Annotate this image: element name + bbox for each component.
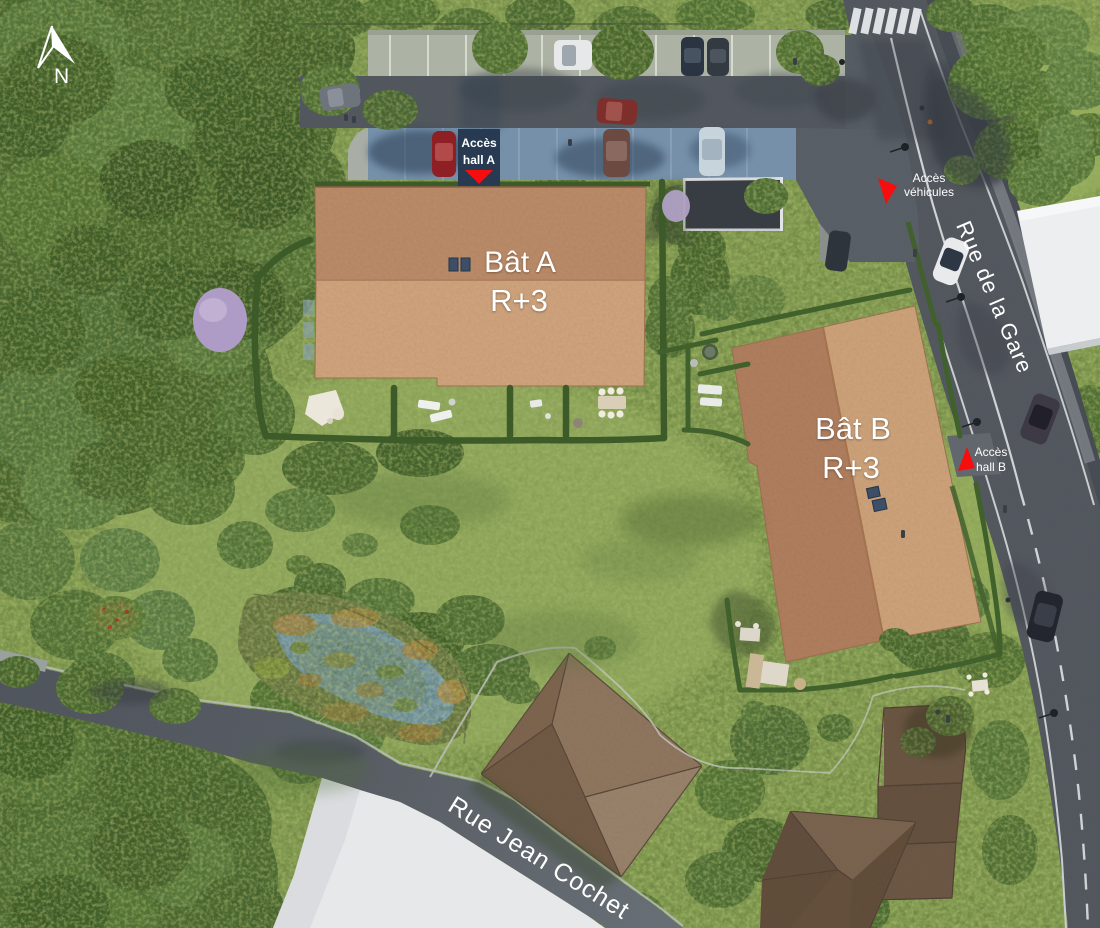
svg-text:Bât B: Bât B <box>815 411 891 446</box>
svg-text:véhicules: véhicules <box>904 185 954 199</box>
svg-text:hall B: hall B <box>976 460 1006 474</box>
svg-text:Accès: Accès <box>461 136 497 150</box>
svg-text:R+3: R+3 <box>822 450 880 485</box>
svg-text:Accès: Accès <box>913 171 946 185</box>
svg-text:hall A: hall A <box>463 153 496 167</box>
svg-text:N: N <box>54 65 69 88</box>
svg-text:Accès: Accès <box>975 445 1008 459</box>
svg-text:R+3: R+3 <box>490 283 548 318</box>
svg-text:Bât A: Bât A <box>484 246 556 279</box>
